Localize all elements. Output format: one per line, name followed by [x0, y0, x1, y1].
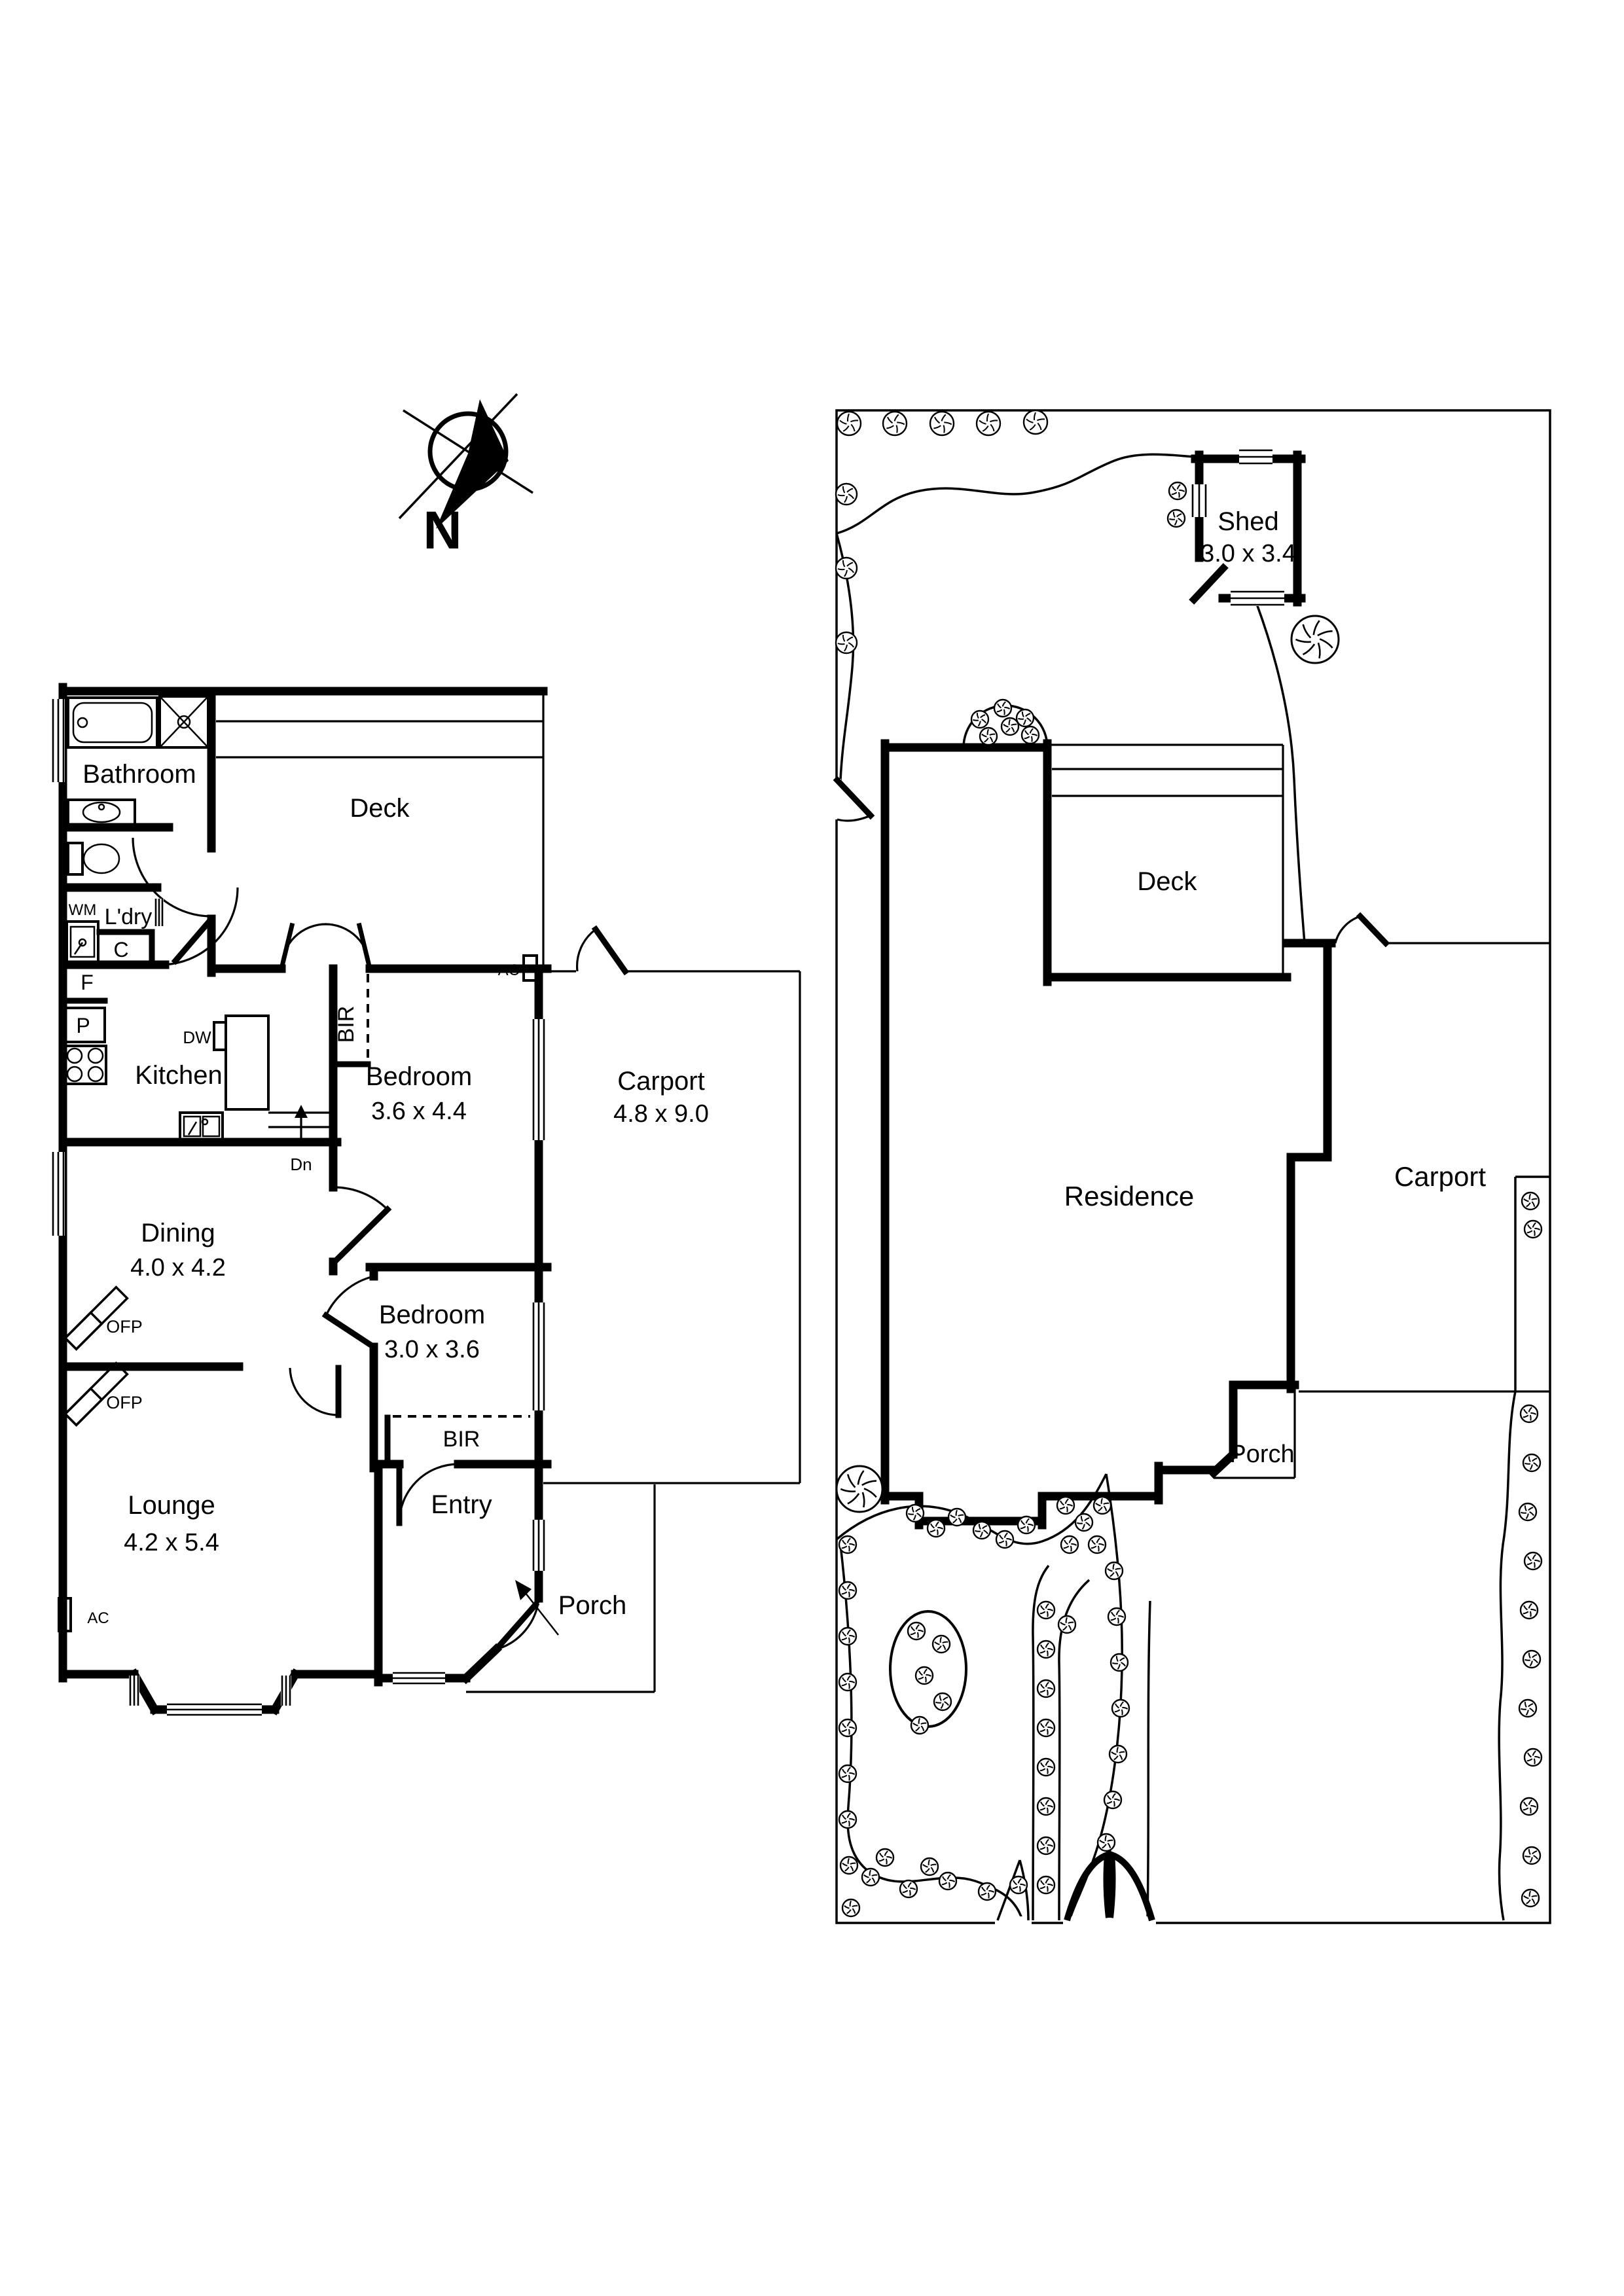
tree-icon	[883, 412, 907, 435]
laundry-trough-icon	[67, 922, 98, 962]
room-dims-lounge: 4.2 x 5.4	[124, 1529, 219, 1556]
compass-north-label: N	[423, 501, 461, 560]
shrub-icon	[1038, 1602, 1055, 1619]
tree-icon	[837, 412, 861, 435]
tree-icon	[1024, 410, 1047, 434]
site-label-deck: Deck	[1137, 867, 1197, 896]
site-label-porch: Porch	[1229, 1441, 1294, 1468]
floorplan-canvas: N	[0, 0, 1624, 2296]
shrub-icon	[1058, 1616, 1075, 1633]
label-ofp: OFP	[106, 1317, 143, 1336]
tree-icon	[836, 632, 857, 653]
room-label-lounge: Lounge	[128, 1491, 215, 1520]
window-icon	[167, 1703, 262, 1716]
shrub-icon	[1038, 1680, 1055, 1697]
shrub-icon	[839, 1674, 856, 1691]
shrub-icon	[1521, 1602, 1538, 1619]
tree-icon	[836, 558, 857, 579]
tree-icon	[977, 412, 1000, 435]
shrub-icon	[1523, 1847, 1540, 1864]
room-label-porch: Porch	[558, 1591, 627, 1620]
windows	[52, 699, 545, 1716]
room-dims-bedroom1: 3.6 x 4.4	[371, 1098, 467, 1125]
shrub-icon	[1169, 482, 1186, 499]
driveway-gates	[1063, 1855, 1156, 1927]
shrub-icon	[1094, 1497, 1111, 1514]
shrub-icon	[839, 1765, 856, 1782]
tree-icon	[930, 412, 954, 435]
shrub-icon	[1108, 1608, 1125, 1625]
room-label-kitchen: Kitchen	[135, 1061, 222, 1090]
dishwasher-box	[214, 1022, 226, 1050]
stairs-arrow-icon	[295, 1105, 308, 1118]
room-label-bathroom: Bathroom	[82, 760, 196, 789]
shrub-icon	[839, 1536, 856, 1553]
shrub-icon	[921, 1858, 938, 1875]
shrub-icon	[1038, 1876, 1055, 1893]
shrub-icon	[996, 1531, 1013, 1548]
site-label-carport: Carport	[1394, 1161, 1486, 1192]
tree-icon	[837, 1466, 882, 1512]
room-label-dining: Dining	[141, 1219, 215, 1247]
window-icon	[154, 899, 164, 926]
shrub-icon	[839, 1811, 856, 1828]
label-cupboard: C	[113, 938, 128, 961]
side-gate	[831, 779, 871, 821]
shrub-icon	[1098, 1834, 1115, 1851]
shrub-icon	[1523, 1454, 1540, 1471]
label-ac: AC	[498, 961, 520, 979]
room-label-deck: Deck	[350, 794, 410, 823]
window-icon	[281, 1676, 291, 1706]
room-label-entry: Entry	[431, 1490, 492, 1519]
floor-plan: Bathroom Deck WM L'dry C F P DW Kitchen …	[52, 687, 800, 1716]
shrub-icon	[979, 1883, 996, 1900]
deck-steps	[216, 721, 543, 757]
shrub-icon	[907, 1505, 924, 1522]
shrub-icon	[842, 1899, 859, 1916]
shrub-icon	[1104, 1791, 1121, 1808]
shrub-icon	[1038, 1719, 1055, 1736]
window-icon	[52, 1152, 65, 1236]
room-dims-carport: 4.8 x 9.0	[613, 1100, 709, 1128]
stove-icon	[64, 1046, 106, 1084]
shrub-icon	[1521, 1798, 1538, 1815]
shrub-icon	[933, 1636, 950, 1653]
shrub-icon	[1522, 1890, 1539, 1907]
carport-outline	[543, 971, 800, 1483]
shower-icon	[160, 696, 208, 747]
site-plan: Shed 3.0 x 3.4 Deck Residence Carport Po…	[831, 410, 1550, 1927]
shrub-icon	[1525, 1749, 1542, 1766]
window-icon	[532, 1302, 545, 1410]
site-deck-edges	[1047, 745, 1283, 977]
room-label-bedroom1: Bedroom	[366, 1062, 472, 1091]
window-icon	[532, 1520, 545, 1571]
shrub-icon	[900, 1880, 917, 1897]
window-icon	[1239, 449, 1272, 465]
compass-rose: N	[399, 394, 533, 560]
room-dims-bedroom2: 3.0 x 3.6	[384, 1336, 480, 1363]
shrub-icon	[1110, 1746, 1127, 1763]
shrub-icon	[1111, 1654, 1128, 1671]
bathtub-icon	[68, 698, 157, 747]
shrub-icon	[1001, 718, 1019, 735]
window-icon	[52, 699, 65, 782]
shrub-icon	[973, 1522, 990, 1539]
shrub-icon	[1522, 1193, 1539, 1210]
shrub-icon	[911, 1717, 928, 1734]
residence-walls	[885, 744, 1331, 1525]
site-label-shed: Shed	[1218, 507, 1278, 536]
shrub-icon	[1057, 1497, 1074, 1514]
shrub-icon	[980, 728, 997, 745]
shrub-icon	[1061, 1536, 1078, 1553]
shrub-icon	[1018, 1516, 1035, 1534]
shrub-icon	[839, 1719, 856, 1736]
label-dishwasher: DW	[183, 1028, 211, 1047]
shrub-icon	[1106, 1562, 1123, 1579]
shrub-icon	[1525, 1552, 1542, 1570]
label-wm: WM	[69, 901, 97, 919]
shrub-icon	[1038, 1641, 1055, 1658]
shrub-icon	[1022, 726, 1039, 744]
shrub-icon	[916, 1667, 933, 1684]
site-label-residence: Residence	[1064, 1181, 1194, 1211]
label-fridge: F	[81, 971, 94, 994]
shrub-icon	[1519, 1700, 1536, 1717]
site-dims-shed: 3.0 x 3.4	[1200, 540, 1296, 567]
shrub-icon	[1075, 1514, 1092, 1531]
shrub-icon	[1089, 1536, 1106, 1553]
shrub-icon	[839, 1582, 856, 1599]
room-label-carport: Carport	[617, 1067, 704, 1096]
label-bir: BIR	[334, 1006, 359, 1043]
window-icon	[393, 1672, 445, 1685]
kitchen-sink-icon	[180, 1113, 223, 1140]
label-pantry: P	[76, 1014, 90, 1037]
shrub-icon	[1112, 1700, 1129, 1717]
label-ofp: OFP	[106, 1393, 143, 1412]
shrub-icon	[1521, 1405, 1538, 1422]
shrub-icon	[862, 1869, 879, 1886]
shrub-icon	[1523, 1651, 1540, 1668]
shrub-icon	[939, 1873, 956, 1890]
toilet-icon	[68, 843, 119, 874]
room-label-bedroom2: Bedroom	[379, 1300, 485, 1329]
room-label-laundry: L'dry	[105, 905, 153, 929]
shrub-icon	[1525, 1221, 1542, 1238]
window-icon	[1191, 484, 1207, 517]
window-icon	[129, 1676, 139, 1706]
window-icon	[1231, 590, 1284, 606]
window-icon	[532, 1019, 545, 1140]
kitchen-bench	[226, 1016, 268, 1109]
shrub-icon	[1038, 1837, 1055, 1854]
floorplan-page: N	[0, 0, 1624, 2296]
room-dims-dining: 4.0 x 4.2	[130, 1254, 226, 1282]
site-carport-door	[1360, 916, 1386, 943]
shrub-icon	[994, 700, 1011, 717]
shrub-icon	[908, 1623, 925, 1640]
shrub-icon	[1010, 1876, 1027, 1893]
shrub-icon	[1038, 1759, 1055, 1776]
shrub-icon	[1017, 709, 1034, 726]
shrub-icon	[948, 1509, 965, 1526]
shrub-icon	[1168, 510, 1185, 527]
tree-icon	[1291, 616, 1339, 663]
vanity-basin-icon	[68, 800, 135, 826]
shrub-icon	[1038, 1798, 1055, 1815]
label-ac: AC	[87, 1609, 109, 1627]
porch-outline	[466, 1484, 655, 1692]
shrub-icon	[934, 1693, 951, 1710]
label-stairs-down: Dn	[290, 1155, 312, 1174]
shrub-icon	[839, 1628, 856, 1645]
shrub-icon	[928, 1520, 945, 1537]
shrub-icon	[971, 711, 988, 728]
shrub-icon	[1519, 1503, 1536, 1520]
shrub-icon	[840, 1857, 857, 1874]
tree-icon	[836, 484, 857, 505]
label-bir: BIR	[443, 1427, 480, 1452]
residence-outline	[885, 744, 1550, 1525]
shrub-icon	[876, 1849, 893, 1866]
